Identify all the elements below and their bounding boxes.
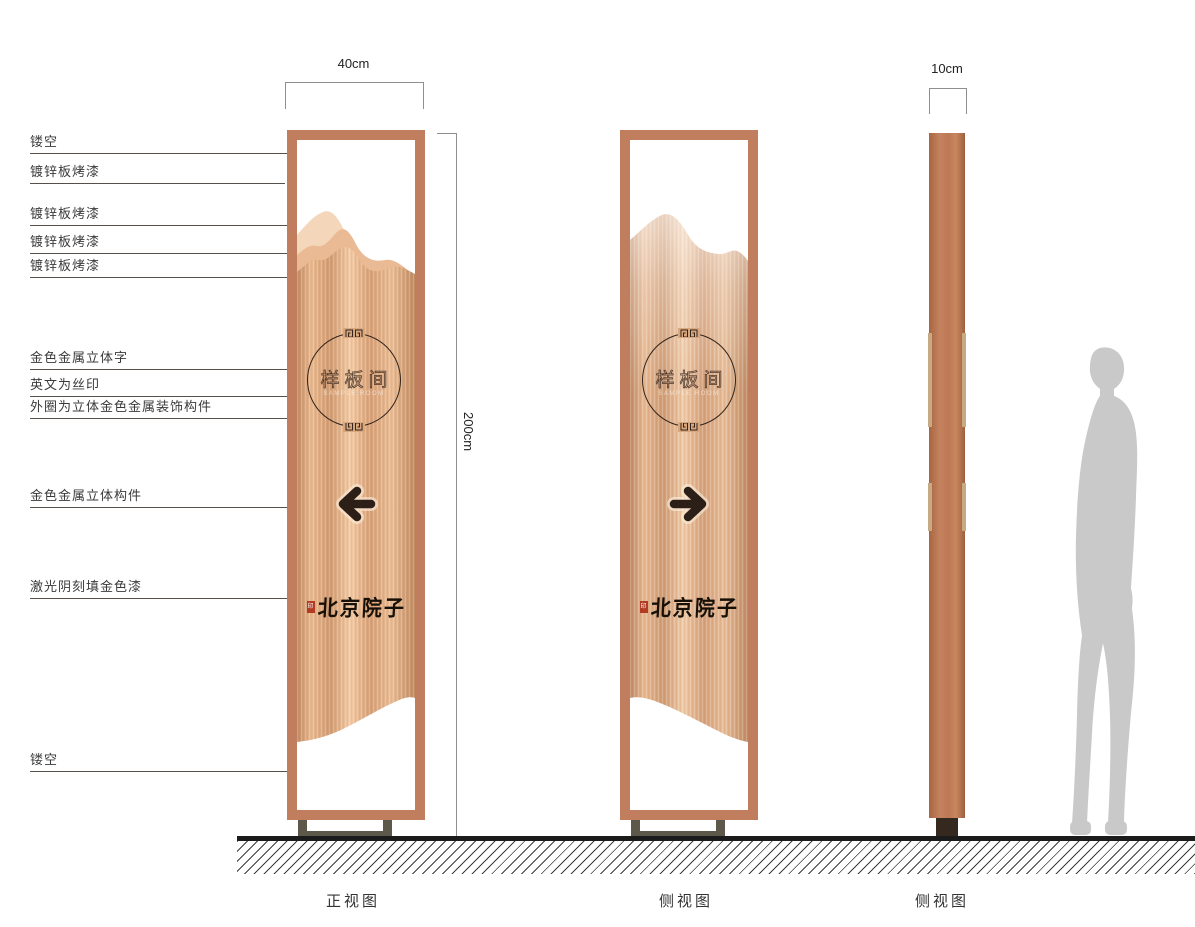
annotation-galvanized-layer3: 镀锌板烤漆 <box>30 255 289 278</box>
leader-line <box>30 183 285 184</box>
side-tab <box>928 483 932 531</box>
left-arrow-icon <box>330 484 378 524</box>
fret-ornament-icon <box>343 328 365 338</box>
sign-english-caption: SAMPLE ROOM <box>307 391 401 397</box>
fret-ornament-icon <box>343 422 365 432</box>
front-view-pillar: 样板间 SAMPLE ROOM 印 北京院子 <box>287 130 425 820</box>
brand-text: 北京院子 <box>650 591 740 622</box>
annotation-hollow-bottom: 镂空 <box>30 749 302 772</box>
leader-line <box>30 225 324 226</box>
red-seal-icon: 印 <box>640 601 648 613</box>
annotation-label: 镀锌板烤漆 <box>30 203 324 222</box>
view-label-front: 正视图 <box>326 890 380 911</box>
side-width-dimension-bracket <box>929 88 967 114</box>
brand-calligraphy: 印 北京院子 <box>297 592 415 621</box>
fret-ornament-icon <box>678 422 700 432</box>
side-tab <box>962 333 966 427</box>
sign-text: 样板间 <box>307 365 401 392</box>
annotation-label: 激光阴刻填金色漆 <box>30 576 300 595</box>
height-dimension-tick <box>437 133 456 134</box>
width-dimension-bracket <box>285 82 424 109</box>
annotation-label: 镀锌板烤漆 <box>30 255 289 274</box>
fret-ornament-icon <box>678 328 700 338</box>
annotation-label: 外圈为立体金色金属装饰构件 <box>30 396 317 415</box>
front-view-panel: 样板间 SAMPLE ROOM 印 北京院子 <box>297 140 415 810</box>
signage-spec-drawing: 镂空 镀锌板烤漆 镀锌板烤漆 镀锌板烤漆 镀锌板烤漆 金色金属立体字 英文为丝印… <box>0 0 1195 927</box>
annotation-galvanized-frame: 镀锌板烤漆 <box>30 161 285 184</box>
front-panel-artwork <box>297 140 415 810</box>
sign-text: 样板间 <box>642 365 736 392</box>
side-profile-foot <box>936 818 958 838</box>
brand-calligraphy: 印 北京院子 <box>630 592 748 621</box>
annotation-laser-engraving: 激光阴刻填金色漆 <box>30 576 300 599</box>
annotation-galvanized-layer2: 镀锌板烤漆 <box>30 231 291 254</box>
side-width-dimension-label: 10cm <box>912 61 982 76</box>
annotation-hollow-top: 镂空 <box>30 131 312 154</box>
right-arrow-icon <box>667 484 715 524</box>
circle-emblem: 样板间 SAMPLE ROOM <box>642 333 736 427</box>
view-label-side1: 侧视图 <box>659 890 713 911</box>
annotation-gold-metal-component: 金色金属立体构件 <box>30 485 309 508</box>
annotation-label: 镂空 <box>30 749 302 768</box>
brand-text: 北京院子 <box>317 591 407 622</box>
width-dimension-label: 40cm <box>285 56 422 71</box>
view-label-side2: 侧视图 <box>915 890 969 911</box>
leader-line <box>30 277 289 278</box>
side-tab <box>962 483 966 531</box>
back-view-pillar: 样板间 SAMPLE ROOM 印 北京院子 <box>620 130 758 820</box>
side-profile-pillar <box>929 133 965 818</box>
red-seal-icon: 印 <box>307 601 315 613</box>
side-tab <box>928 333 932 427</box>
leader-line <box>30 153 312 154</box>
back-panel-artwork <box>630 140 748 810</box>
circle-emblem: 样板间 SAMPLE ROOM <box>307 333 401 427</box>
leader-line <box>30 507 309 508</box>
annotation-label: 金色金属立体构件 <box>30 485 309 504</box>
height-dimension-label: 200cm <box>461 412 476 451</box>
annotation-galvanized-layer1: 镀锌板烤漆 <box>30 203 324 226</box>
sign-english-caption: SAMPLE ROOM <box>642 391 736 397</box>
height-dimension-line <box>456 133 457 836</box>
annotation-label: 镂空 <box>30 131 312 150</box>
annotation-label: 镀锌板烤漆 <box>30 231 291 250</box>
leader-line <box>30 771 302 772</box>
leader-line <box>30 418 317 419</box>
leader-line <box>30 253 291 254</box>
annotation-label: 镀锌板烤漆 <box>30 161 285 180</box>
human-scale-silhouette <box>1040 344 1165 838</box>
leader-line <box>30 598 300 599</box>
ground-hatching <box>237 841 1195 874</box>
annotation-outer-ring: 外圈为立体金色金属装饰构件 <box>30 396 317 419</box>
back-view-panel: 样板间 SAMPLE ROOM 印 北京院子 <box>630 140 748 810</box>
